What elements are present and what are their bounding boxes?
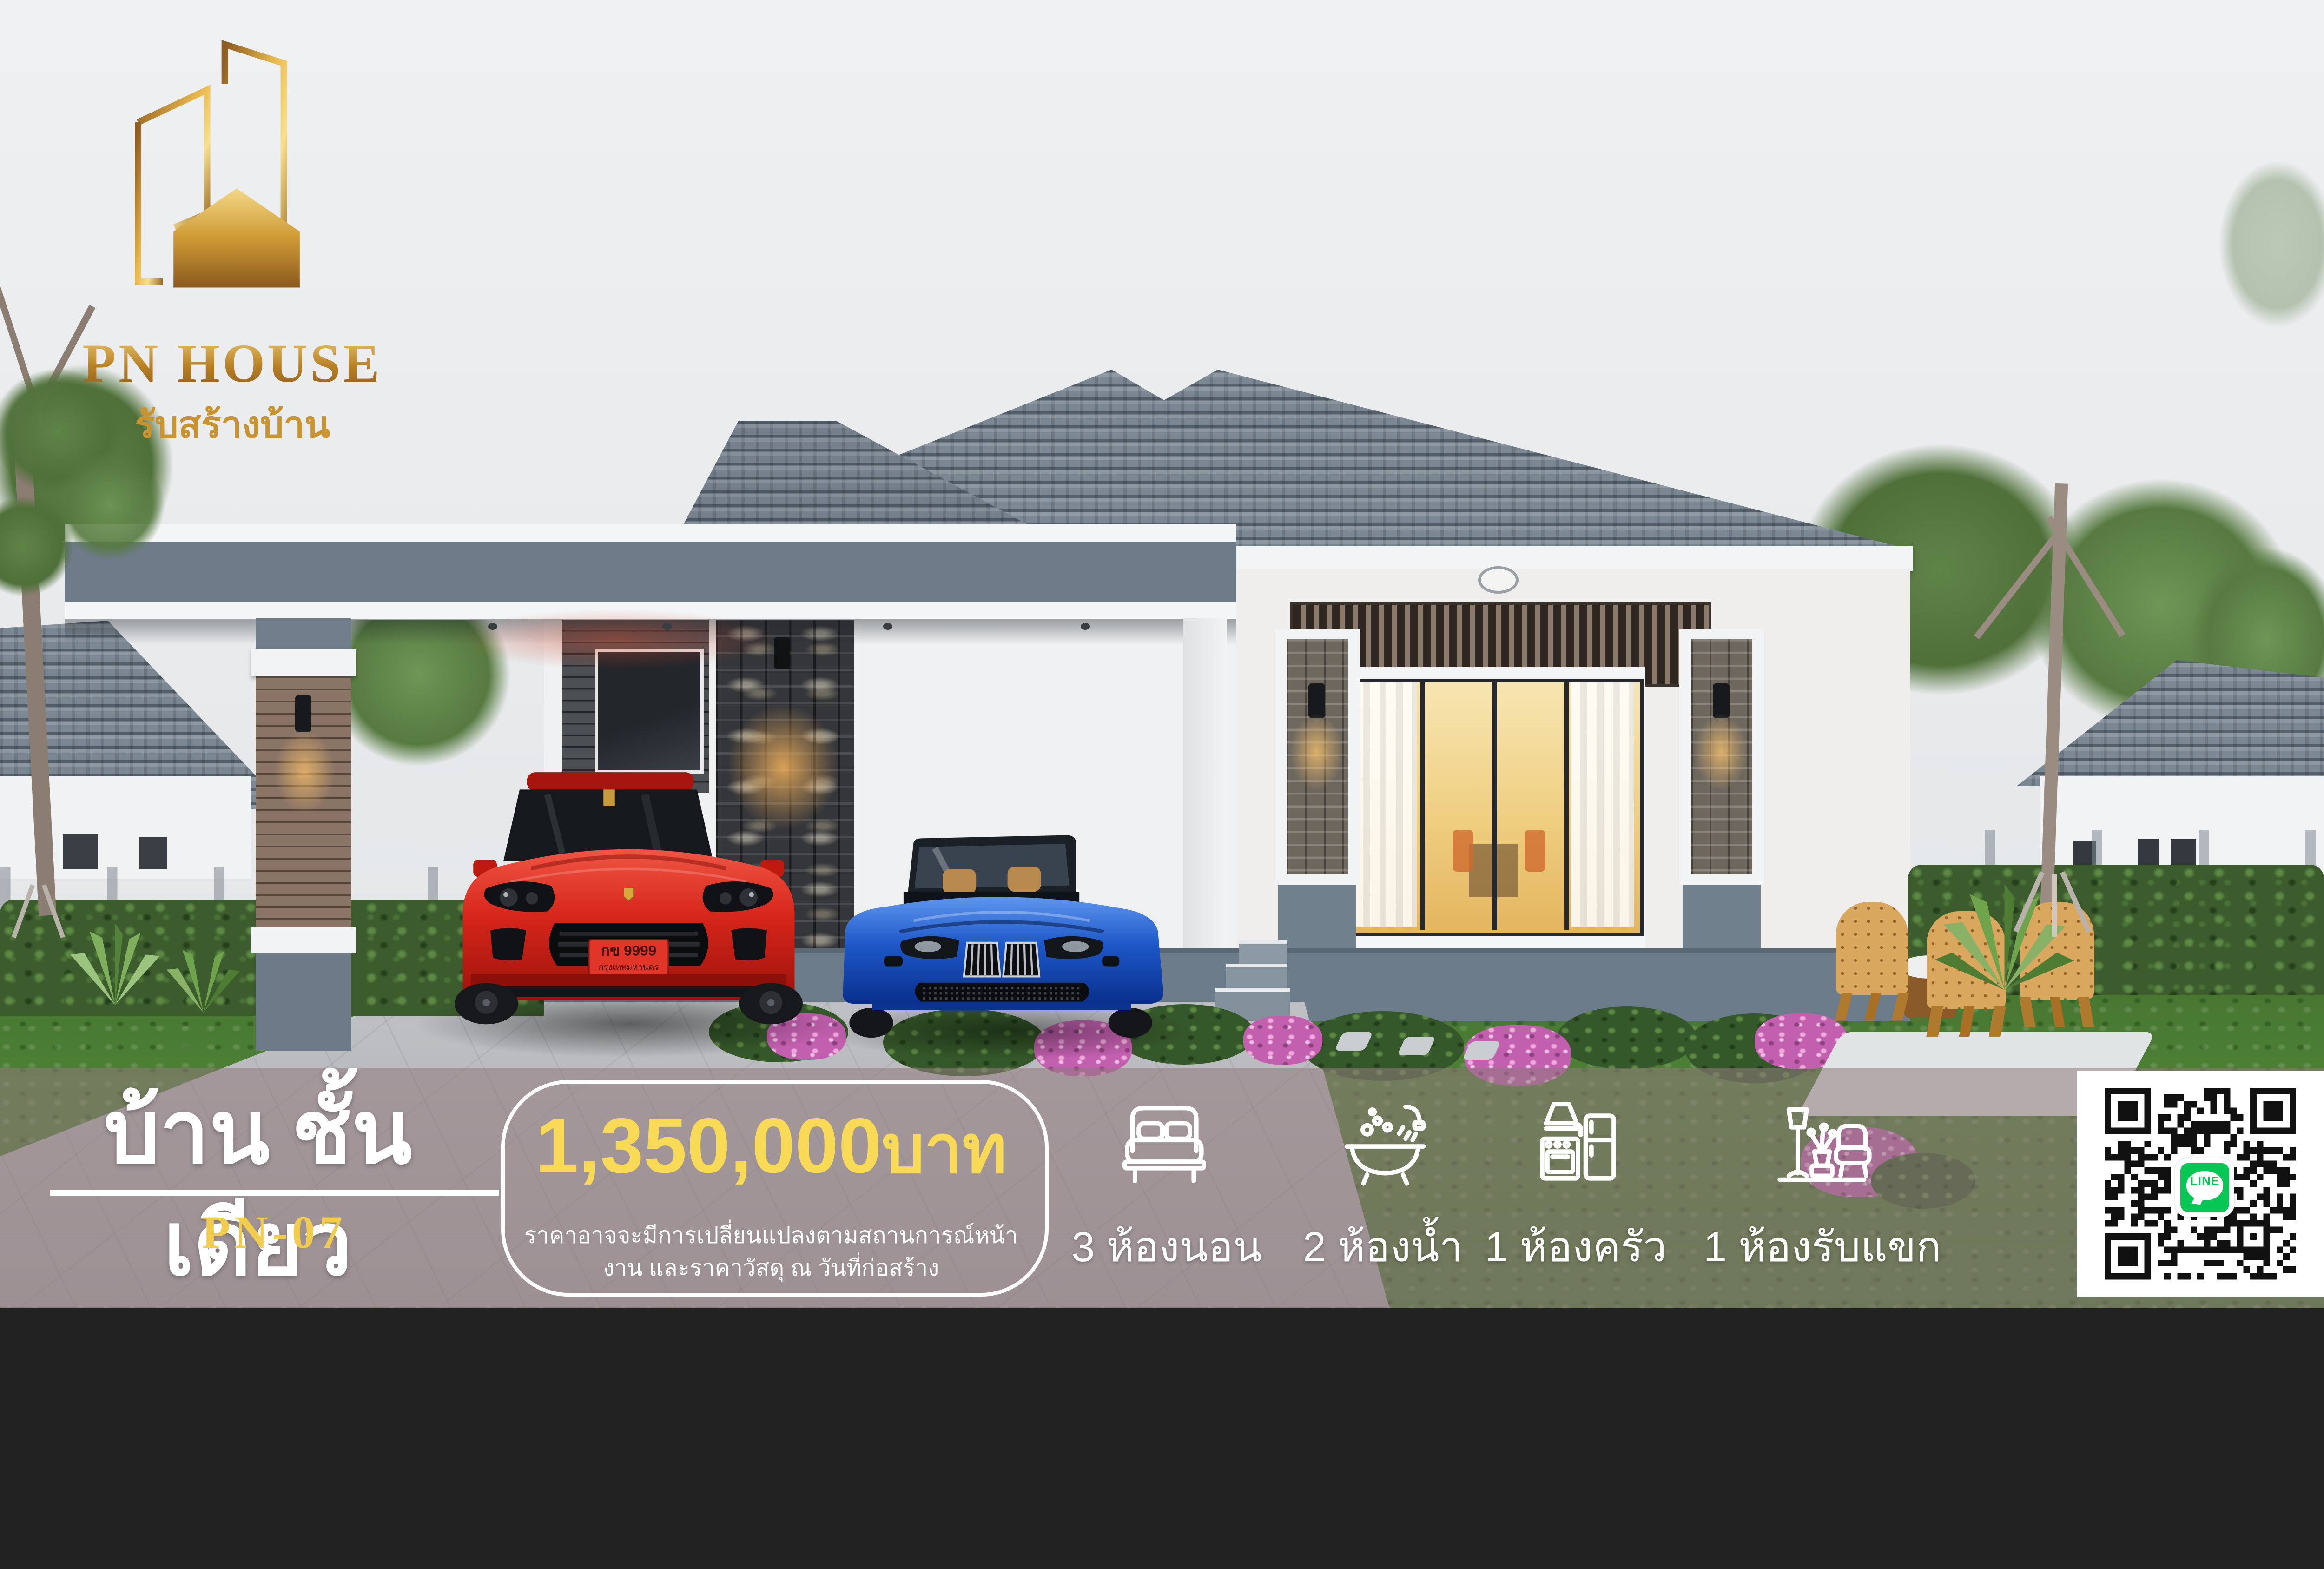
downlight-icon (662, 623, 672, 630)
rattan-chair (1836, 902, 1908, 995)
feature-label: ห้องน้ำ (1338, 1224, 1463, 1271)
sofa-lamp-icon (1771, 1090, 1873, 1192)
window-mullion (1564, 679, 1569, 930)
carport-pillar-base-band (251, 927, 356, 953)
feature-count: 1 (1703, 1224, 1727, 1271)
pillar-pedestal (1683, 885, 1761, 950)
line-logo-text: LINE (2180, 1174, 2229, 1188)
downlight-icon (488, 623, 497, 630)
window-curtain (1571, 682, 1634, 927)
price-amount: 1,350,000 (535, 1102, 882, 1189)
downlight-icon (883, 623, 892, 630)
lamp-glow (1694, 714, 1748, 790)
window-sill (1341, 936, 1645, 949)
wall-lamp-icon (1308, 683, 1325, 718)
tree-support-stake (2052, 874, 2057, 937)
window-curtain (1354, 682, 1417, 927)
feature-kitchen: 1 ห้องครัว (1459, 1213, 1692, 1280)
blue-convertible-car (825, 827, 1178, 1040)
feature-bedrooms: 3 ห้องนอน (1050, 1213, 1283, 1280)
carport-pillar-plinth (256, 953, 351, 1051)
brand-name: PN HOUSE (53, 332, 411, 395)
feature-label: ห้องครัว (1519, 1224, 1666, 1271)
left-neighbor-window (139, 837, 167, 869)
pn-house-logo-icon (86, 28, 370, 335)
wall-lamp-icon (1713, 683, 1730, 718)
downlight-icon (1081, 623, 1090, 630)
wall-lamp-icon (295, 695, 311, 732)
feature-living-room: 1 ห้องรับแขก (1703, 1213, 1936, 1280)
feature-count: 3 (1071, 1224, 1095, 1271)
title-divider (50, 1190, 499, 1196)
lamp-glow (1290, 714, 1343, 790)
feature-count: 2 (1303, 1224, 1326, 1271)
feature-label: ห้องนอน (1106, 1224, 1261, 1271)
background-tree-faint (2196, 128, 2324, 360)
carport-pillar-cap (251, 649, 356, 676)
feature-count: 1 (1485, 1224, 1508, 1271)
agave-plant (1917, 874, 2092, 995)
license-plate-province: กรุงเทพมหานคร (599, 962, 659, 973)
flower-cluster (1243, 1016, 1322, 1065)
red-suv-car: กข 9999 กรุงเทพมหานคร (425, 737, 832, 1025)
chair-legs (1835, 993, 1909, 1020)
brand-tagline: รับสร้างบ้าน (53, 395, 411, 454)
garden-bush (1557, 1006, 1697, 1069)
price-note-line1: ราคาอาจจะมีการเปลี่ยนแปลงตามสถานการณ์หน้… (501, 1217, 1042, 1253)
carport-roof-slab (65, 524, 1236, 620)
agave-plant (151, 937, 256, 1016)
left-neighbor-window (63, 834, 98, 869)
window-mullion (1420, 679, 1425, 930)
feature-label: ห้องรับแขก (1738, 1224, 1941, 1271)
price-line: 1,350,000บาท (501, 1095, 1042, 1202)
porch-ceiling-lamp (1478, 566, 1519, 594)
bathtub-icon (1334, 1090, 1436, 1192)
chair-legs (1926, 1006, 2006, 1037)
bed-icon (1106, 1090, 1222, 1192)
price-unit: บาท (882, 1112, 1007, 1187)
license-plate-number: กข 9999 (601, 942, 656, 959)
kitchen-icon (1527, 1090, 1629, 1192)
chair-legs (2019, 997, 2094, 1027)
poster: กข 9999 กรุงเทพมหานคร บ้าน ชั้นเดียว PN-… (0, 0, 2324, 1308)
window-mullion (1492, 679, 1497, 930)
carport-corner-pillar (1183, 618, 1227, 948)
pillar-pedestal (1278, 885, 1356, 950)
lamp-glow (274, 730, 335, 814)
poster-title: บ้าน ชั้นเดียว (19, 1078, 497, 1301)
line-logo-icon: LINE (2175, 1158, 2234, 1217)
window-interior-chair (1525, 830, 1545, 872)
model-code: PN-07 (50, 1205, 499, 1259)
carport-pillar (256, 618, 351, 650)
foreground-tree-foliage (0, 477, 93, 616)
price-note-line2: งาน และราคาวัสดุ ณ วันที่ก่อสร้าง (501, 1250, 1042, 1286)
carport-ceiling-red-glow (453, 609, 779, 669)
window-interior-chair (1452, 830, 1473, 872)
